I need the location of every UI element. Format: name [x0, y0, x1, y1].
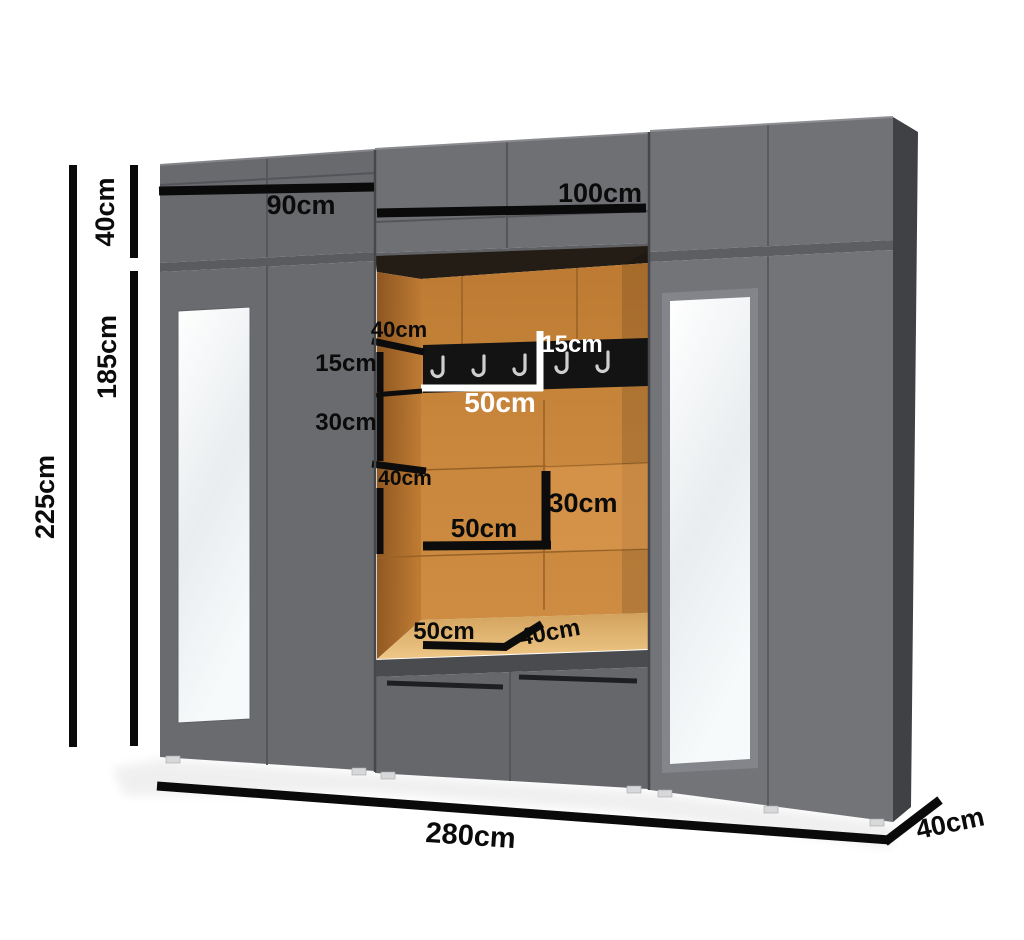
niche-label-rack-height: 15cm — [541, 331, 602, 358]
cabinet-side-panel — [893, 117, 918, 822]
left-section — [160, 150, 375, 771]
back-wall-corner-shade — [622, 251, 648, 617]
right-top-cabinets — [650, 117, 893, 252]
niche — [372, 246, 648, 659]
wardrobe-illustration: 40cm 185cm 225cm 90cm 100cm 280cm 40cm 4… — [0, 0, 1024, 940]
dim-label-total-height: 225cm — [30, 455, 60, 539]
dimension-diagram: 40cm 185cm 225cm 90cm 100cm 280cm 40cm 4… — [0, 0, 1024, 940]
dim-label-middle-width: 100cm — [558, 178, 642, 208]
niche-label-top-shelf-depth: 40cm — [371, 317, 427, 342]
dim-label-main-height: 185cm — [92, 315, 122, 399]
dim-label-left-width: 90cm — [266, 190, 335, 220]
dim-line-middle-width — [377, 208, 646, 213]
niche-label-middle-shelf-depth: 40cm — [378, 467, 432, 490]
left-door-mirror — [178, 307, 250, 723]
dim-label-upper-height: 40cm — [90, 177, 120, 246]
niche-label-bench-width: 50cm — [413, 618, 474, 645]
right-section — [650, 117, 893, 822]
niche-label-lower-gap: 30cm — [315, 409, 376, 436]
niche-label-cubby-width: 50cm — [451, 513, 518, 543]
niche-label-cubby-height: 30cm — [548, 488, 617, 518]
dim-label-total-width: 280cm — [424, 817, 516, 855]
right-door-mirror — [670, 297, 750, 764]
niche-label-rack-width: 50cm — [464, 387, 536, 418]
niche-label-upper-gap: 15cm — [315, 350, 376, 377]
middle-section — [372, 133, 648, 789]
niche-back-wall — [421, 263, 648, 620]
